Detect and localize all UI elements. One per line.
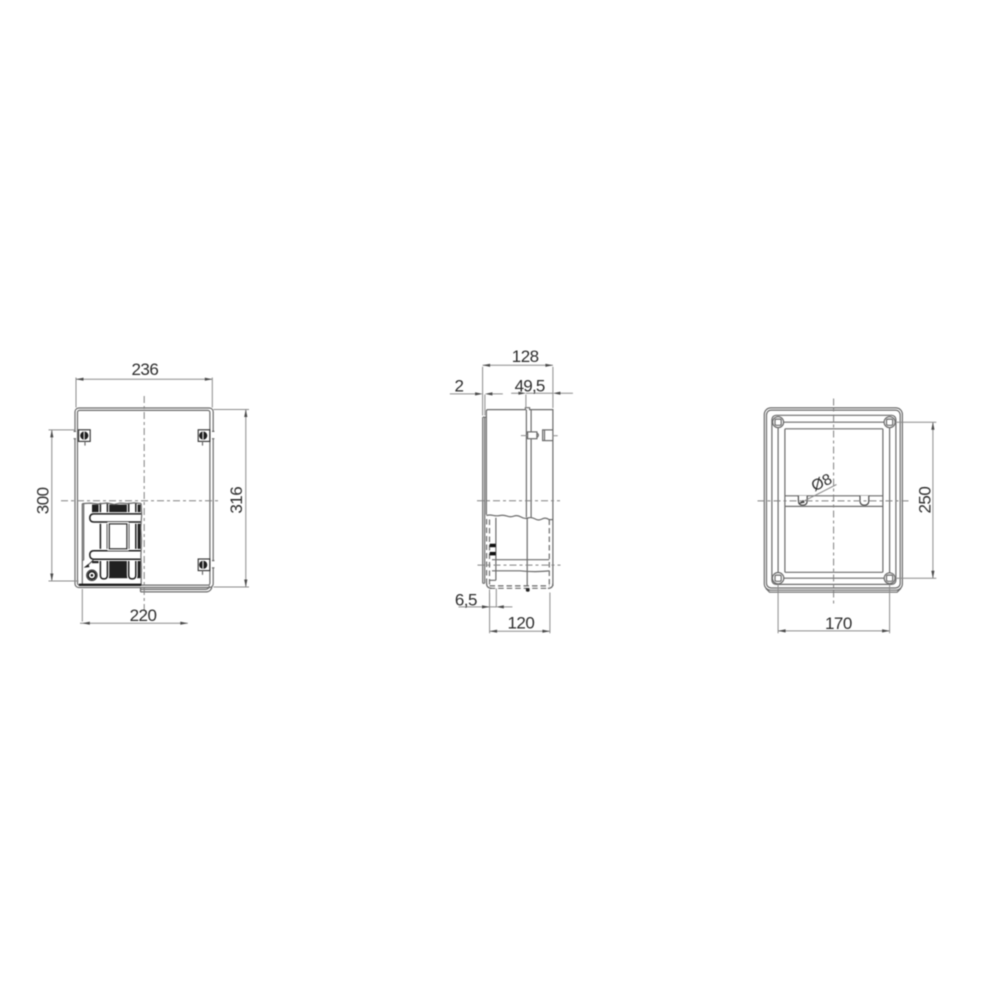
svg-text:6,5: 6,5: [455, 590, 477, 609]
svg-text:2: 2: [454, 376, 463, 395]
svg-text:220: 220: [130, 606, 157, 625]
svg-text:128: 128: [512, 347, 539, 366]
svg-text:250: 250: [916, 487, 935, 514]
svg-text:300: 300: [33, 487, 52, 514]
svg-text:49,5: 49,5: [515, 376, 545, 395]
svg-text:120: 120: [507, 613, 534, 632]
svg-text:170: 170: [825, 614, 852, 633]
svg-text:316: 316: [227, 487, 246, 514]
svg-text:236: 236: [131, 360, 158, 379]
